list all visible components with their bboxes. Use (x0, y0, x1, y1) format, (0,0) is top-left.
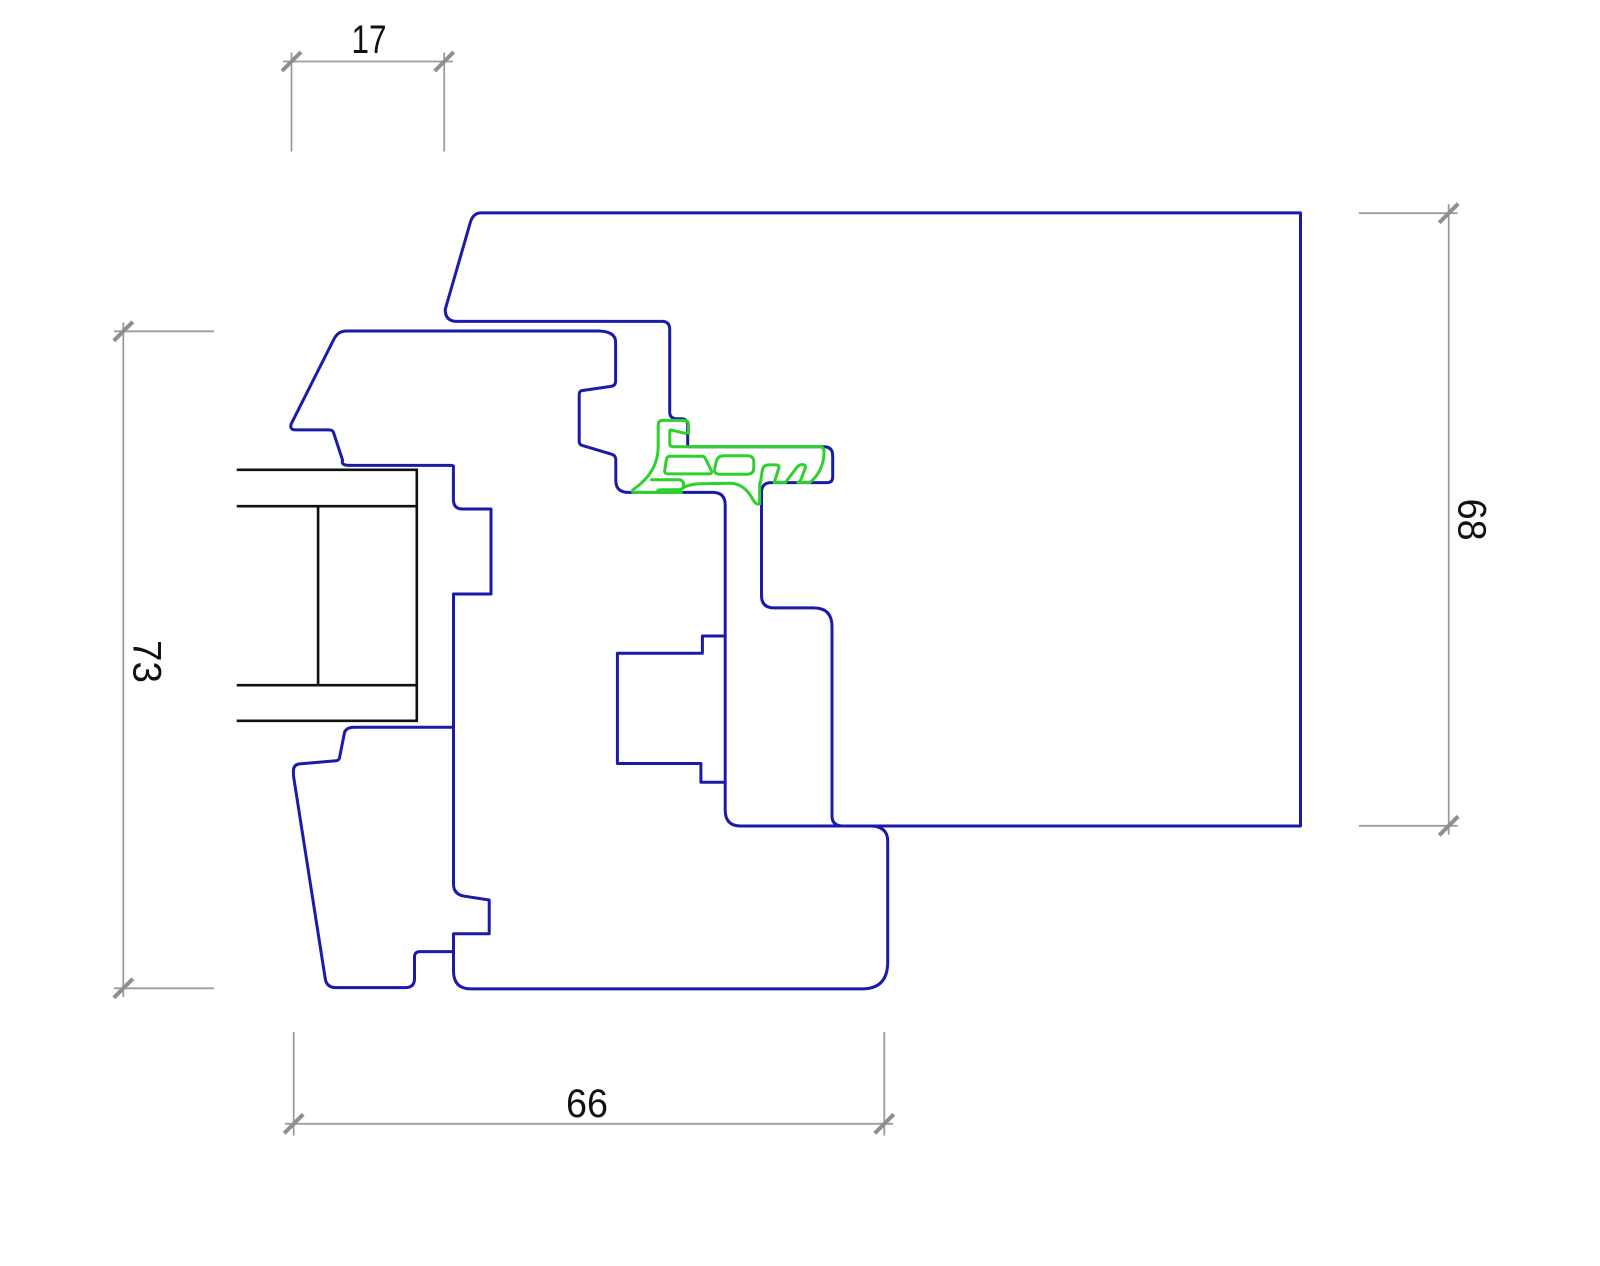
svg-text:73: 73 (125, 640, 169, 683)
svg-text:66: 66 (566, 1082, 608, 1126)
svg-text:68: 68 (1450, 499, 1494, 541)
svg-text:17: 17 (352, 18, 387, 62)
